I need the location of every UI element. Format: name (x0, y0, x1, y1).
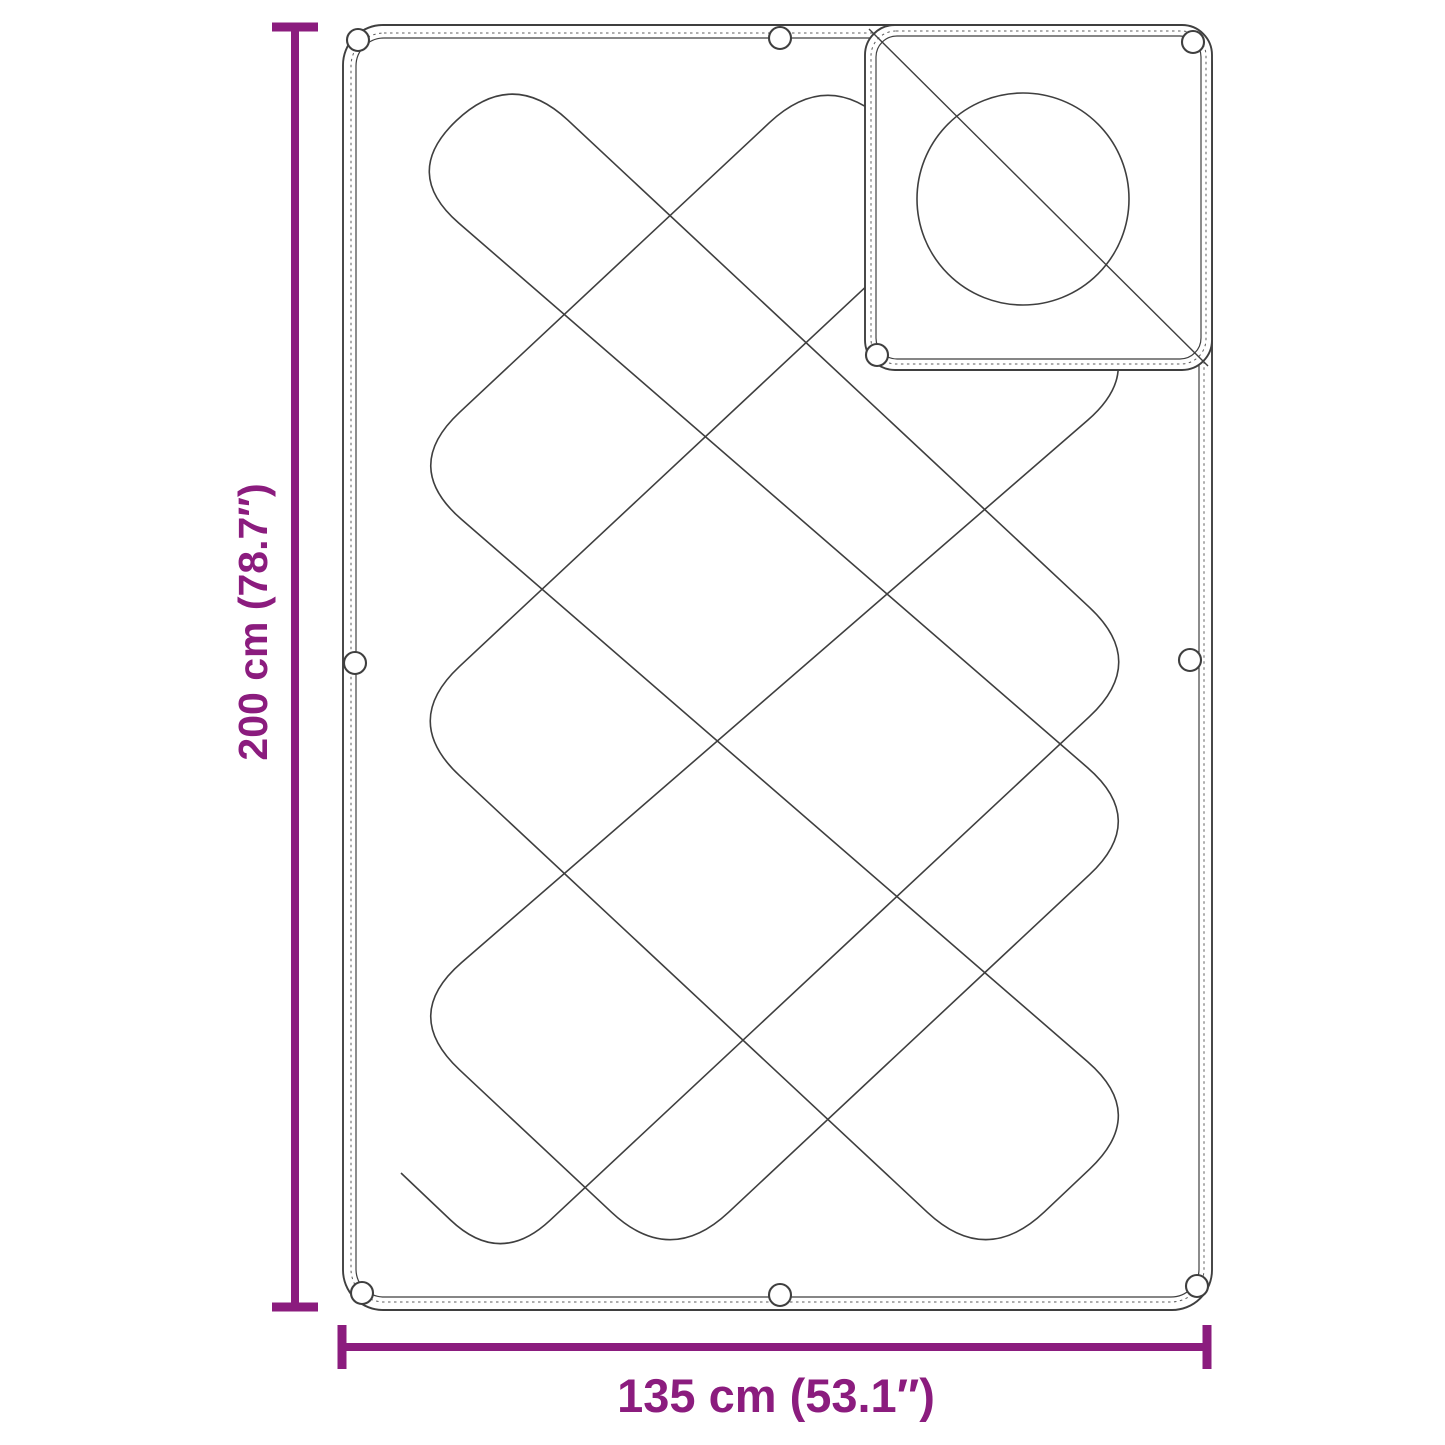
eyelet-flap-top-right-icon (1182, 31, 1204, 53)
eyelet-top-middle-icon (769, 27, 791, 49)
eyelet-middle-right-icon (1179, 649, 1201, 671)
eyelet-middle-left-icon (344, 652, 366, 674)
corner-flap (865, 25, 1212, 370)
eyelet-bottom-left-icon (351, 1282, 373, 1304)
width-dimension-label: 135 cm (53.1″) (617, 1369, 935, 1422)
blanket-dimension-diagram: 200 cm (78.7″) 135 cm (53.1″) (0, 0, 1445, 1445)
eyelet-top-left-icon (347, 29, 369, 51)
diagram-canvas: 200 cm (78.7″) 135 cm (53.1″) (0, 0, 1445, 1445)
height-dimension-label: 200 cm (78.7″) (230, 483, 276, 760)
width-dimension: 135 cm (53.1″) (342, 1325, 1207, 1422)
blanket-drawing (343, 25, 1212, 1310)
eyelet-flap-bottom-left-icon (866, 344, 888, 366)
eyelet-bottom-middle-icon (769, 1284, 791, 1306)
height-dimension: 200 cm (78.7″) (230, 27, 318, 1307)
eyelet-bottom-right-icon (1186, 1275, 1208, 1297)
